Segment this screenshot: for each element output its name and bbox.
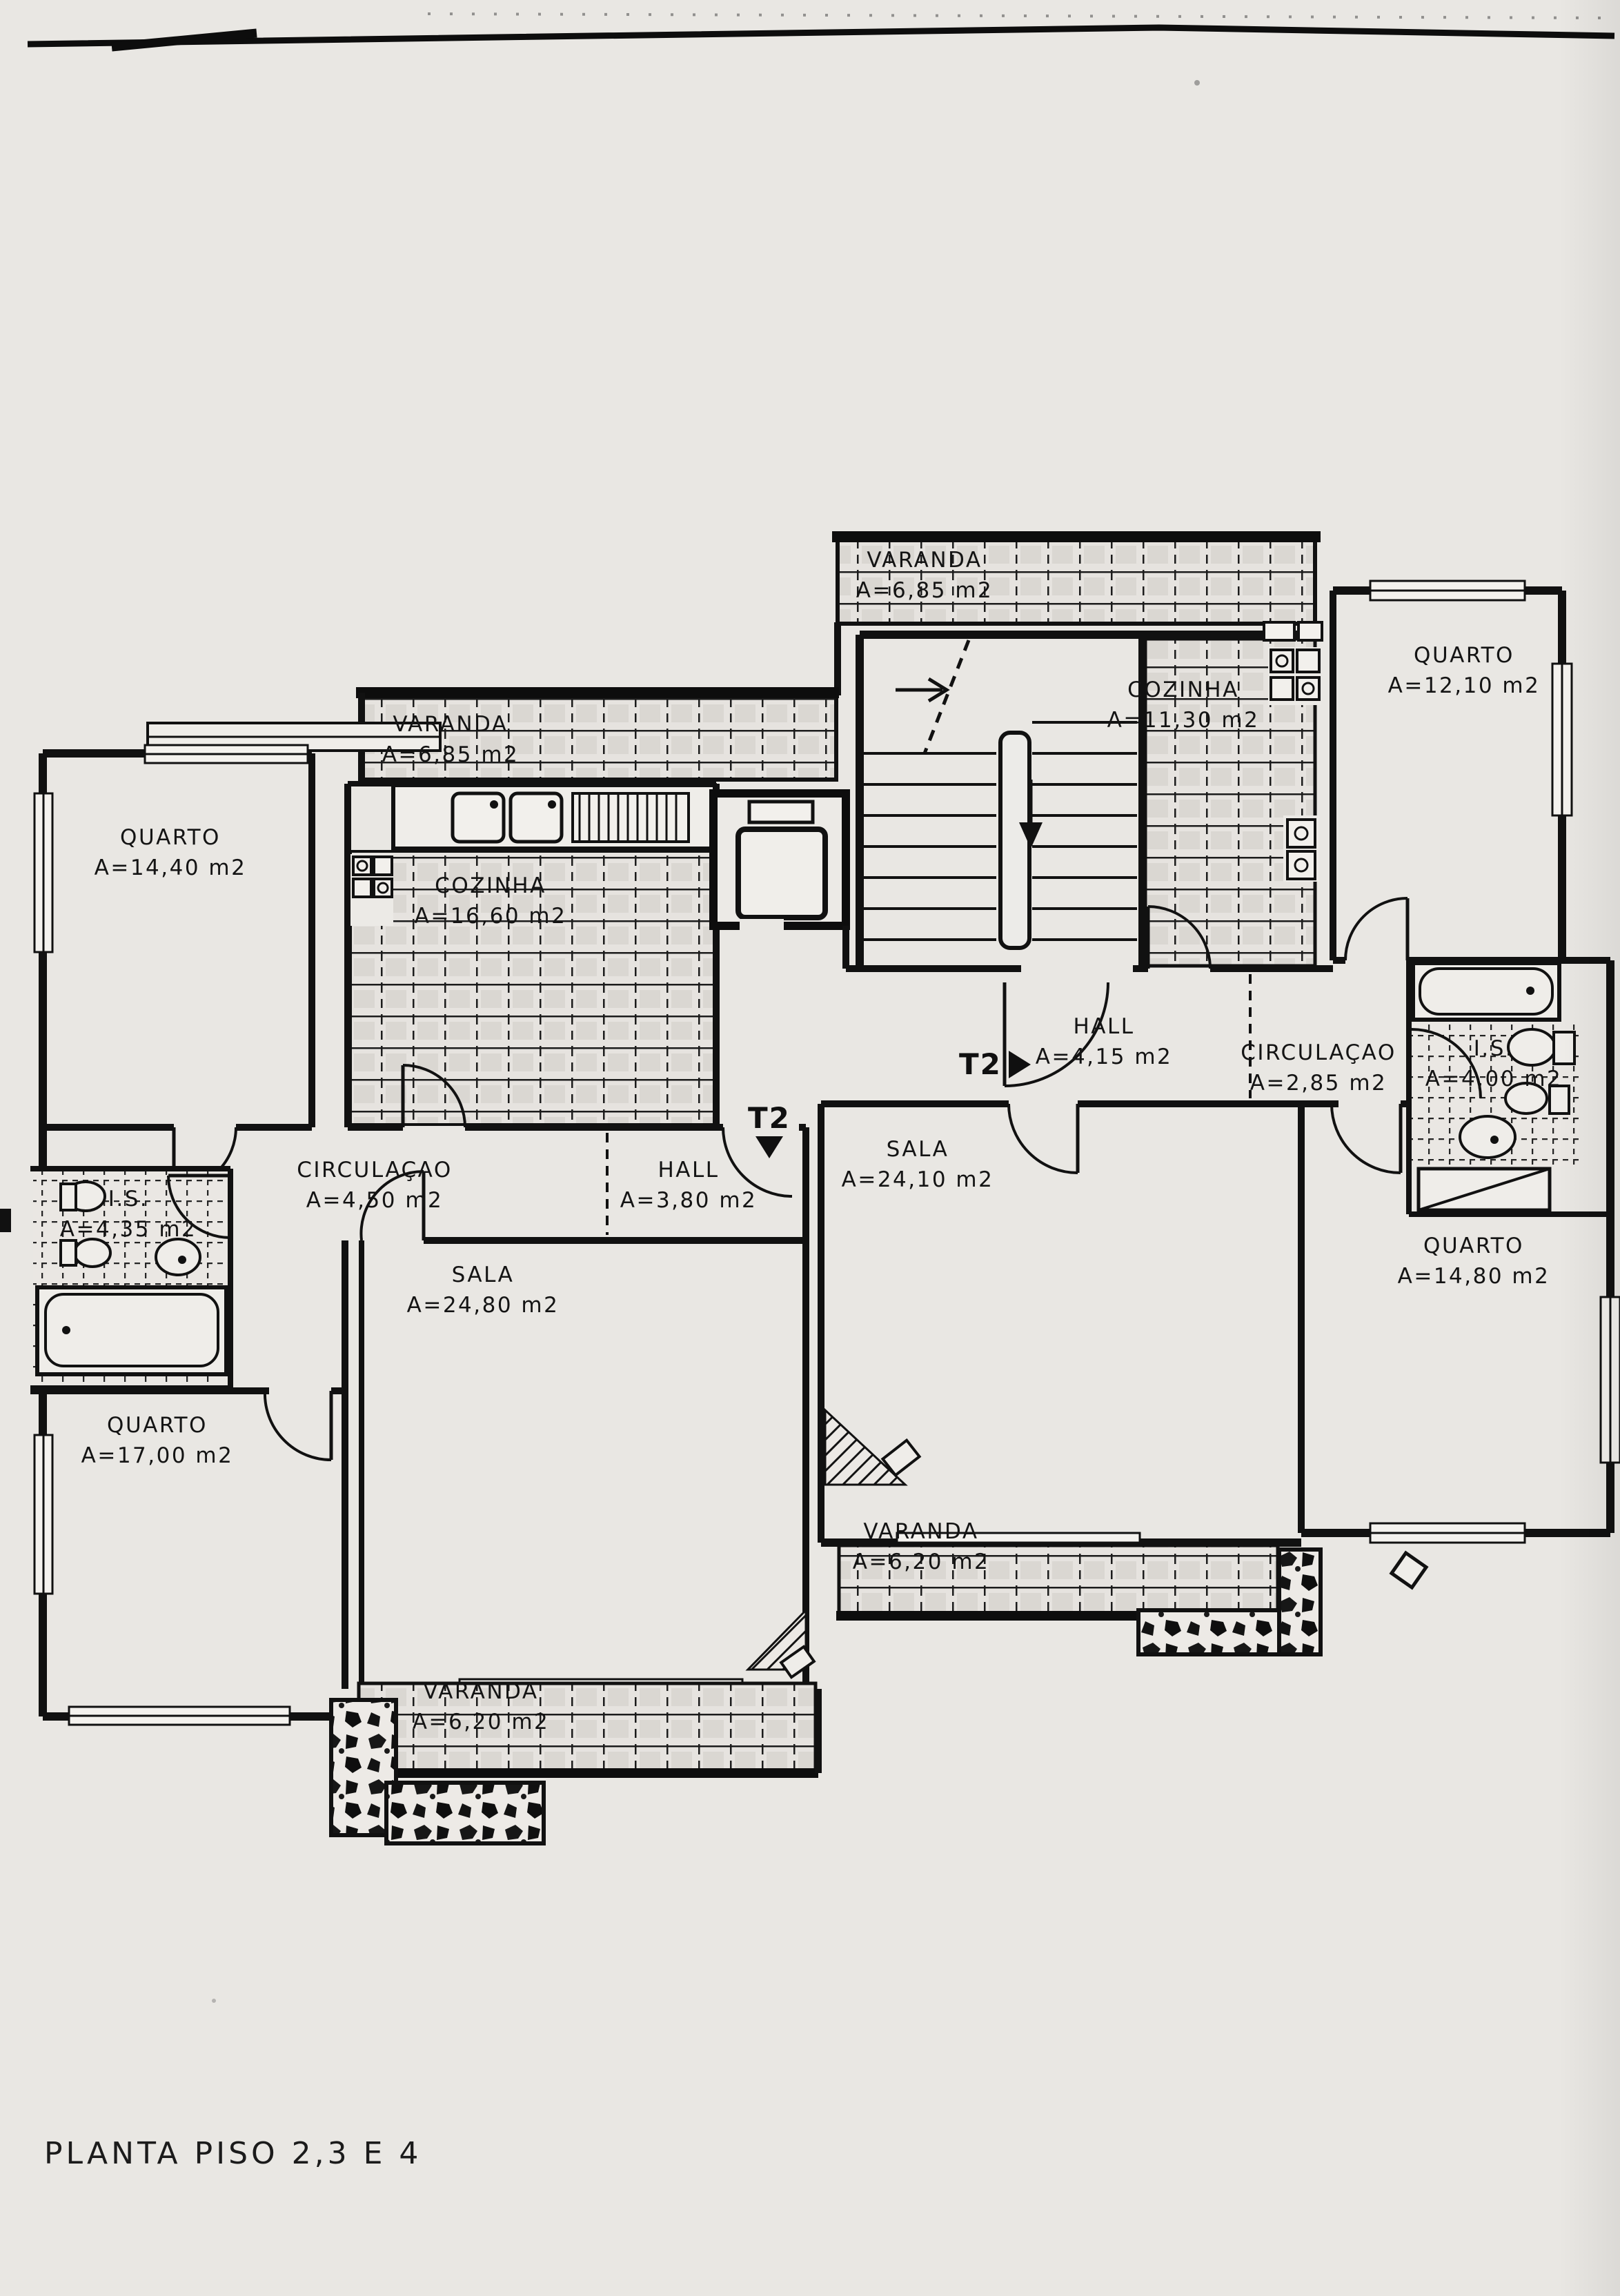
room-label-quarto-1480: QUARTOA=14,80 m2 (1398, 1231, 1550, 1291)
room-label-sala-left: SALAA=24,80 m2 (407, 1260, 560, 1320)
room-label-cozinha-right: COZINHAA=11,30 m2 (1107, 675, 1260, 735)
room-label-cozinha-left: COZINHAA=16,60 m2 (415, 871, 567, 931)
room-label-quarto-17: QUARTOA=17,00 m2 (81, 1410, 234, 1471)
room-label-sala-right: SALAA=24,10 m2 (842, 1134, 994, 1195)
room-label-varanda-left: VARANDAA=6,85 m2 (382, 709, 519, 770)
balcony-bottom-left (331, 1683, 818, 1843)
room-label-varanda-top: VARANDAA=6,85 m2 (856, 545, 993, 606)
room-label-varanda-center: VARANDAA=6,20 m2 (853, 1516, 989, 1577)
room-label-hall-right: HALLA=4,15 m2 (1036, 1011, 1172, 1072)
elevator (713, 793, 861, 969)
room-label-is-right: I.S.A=4,00 m2 (1425, 1033, 1562, 1094)
unit-marker-label: T2 (748, 1101, 791, 1135)
arrow-right-icon (1009, 1051, 1031, 1078)
room-label-circulacao-right: CIRCULAÇAOA=2,85 m2 (1241, 1038, 1396, 1098)
floorplan-drawing (0, 0, 1620, 2296)
room-label-quarto-1440: QUARTOA=14,40 m2 (95, 822, 247, 883)
room-label-circulacao-left: CIRCULAÇAOA=4,50 m2 (297, 1155, 452, 1216)
plan-title: PLANTA PISO 2,3 E 4 (44, 2136, 422, 2171)
unit-marker-label: T2 (959, 1047, 1002, 1081)
room-label-varanda-bottomleft: VARANDAA=6,20 m2 (413, 1676, 549, 1737)
room-label-is-left: I.S.A=4,35 m2 (60, 1184, 197, 1245)
kitchen-left (348, 784, 723, 1127)
unit-marker-t2-left: T2 (748, 1101, 791, 1158)
room-label-hall-left: HALLA=3,80 m2 (620, 1155, 757, 1216)
floorplan-page: VARANDAA=6,85 m2 COZINHAA=11,30 m2 QUART… (0, 0, 1620, 2296)
unit-marker-t2-right: T2 (959, 1047, 1031, 1081)
arrow-down-icon (755, 1136, 783, 1158)
room-label-quarto-12: QUARTOA=12,10 m2 (1388, 640, 1541, 701)
